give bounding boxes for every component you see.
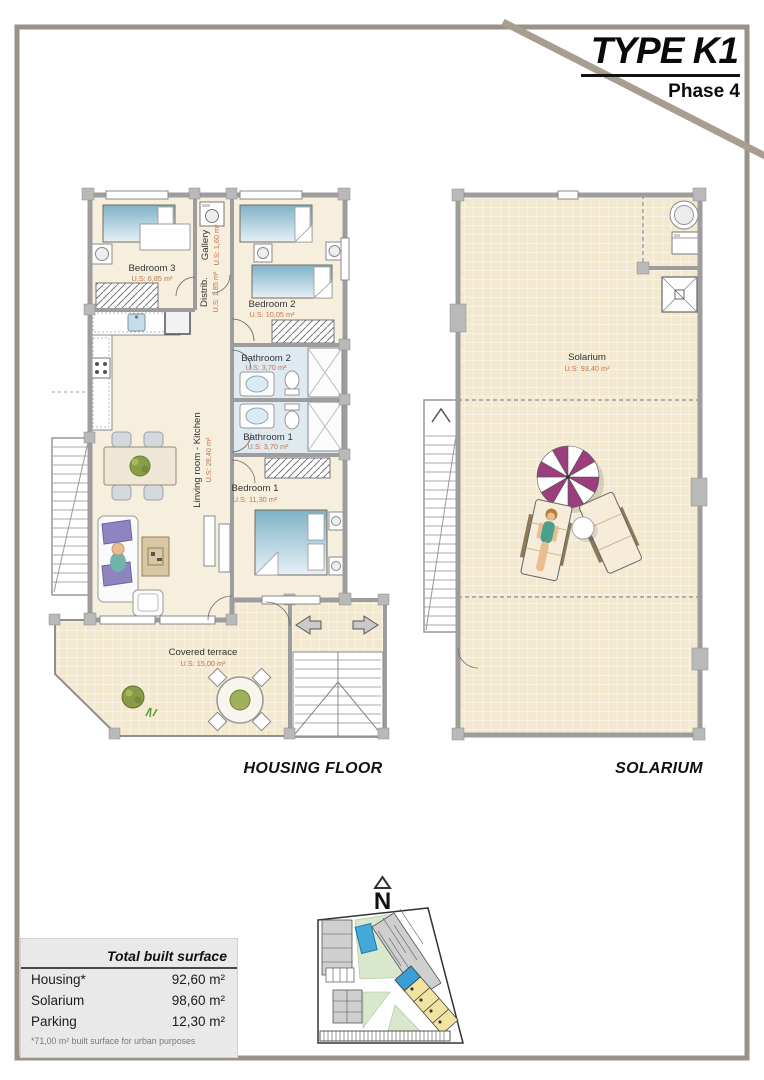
stove-icon — [92, 358, 110, 378]
wardrobe-icon — [96, 283, 158, 310]
sink-icon — [240, 372, 274, 396]
solarium-plan: Solarium U.S: 93,40 m² — [410, 180, 755, 760]
room-label: Bedroom 1 — [232, 483, 279, 494]
floor-plan-sheet: TYPE K1 Phase 4 — [0, 0, 764, 1080]
nightstand-icon — [329, 512, 343, 530]
bed-icon — [252, 265, 332, 298]
row-value: 92,60 m² — [172, 972, 225, 987]
washing-machine-icon — [200, 202, 224, 226]
plan-phase-label: Phase 4 — [581, 81, 740, 103]
window-icon — [558, 191, 578, 199]
toilet-icon — [285, 404, 299, 429]
table-row: Housing* 92,60 m² — [21, 969, 237, 990]
room-area-label: U.S: 1,60 m² — [212, 224, 221, 266]
room-label: Linving room - Kitchen — [192, 412, 203, 507]
sink-icon — [128, 314, 145, 331]
surface-table-title: Total built surface — [21, 939, 237, 969]
room-label: Bedroom 2 — [249, 299, 296, 310]
compass-label: N — [374, 888, 391, 915]
housing-floor-caption: HOUSING FLOOR — [213, 760, 413, 778]
exterior-stairs-icon — [52, 392, 90, 595]
shower-icon — [308, 348, 342, 397]
row-label: Solarium — [31, 993, 84, 1008]
wardrobe-icon — [272, 320, 334, 343]
room-area-label: U.S: 93,40 m² — [564, 364, 610, 373]
row-value: 98,60 m² — [172, 993, 225, 1008]
desk-icon — [140, 224, 190, 250]
room-label: Solarium — [568, 352, 606, 363]
room-label: Bedroom 3 — [129, 263, 176, 274]
wardrobe-icon — [265, 458, 330, 478]
nightstand-icon — [326, 242, 343, 260]
room-area-label: U.S: 1,85 m² — [211, 271, 220, 313]
room-area-label: U.S: 11,30 m² — [233, 495, 278, 504]
compass-north-icon: N — [374, 877, 391, 915]
surface-table: Total built surface Housing* 92,60 m² So… — [20, 938, 238, 1058]
jacuzzi-icon — [670, 201, 698, 229]
nightstand-icon — [92, 244, 112, 264]
room-label: Gallery — [200, 230, 211, 261]
sofa-icon — [98, 516, 138, 602]
nightstand-icon — [254, 244, 272, 262]
plan-header: TYPE K1 Phase 4 — [581, 30, 740, 103]
armchair-icon — [133, 590, 163, 616]
table-row: Solarium 98,60 m² — [21, 990, 237, 1011]
fridge-icon — [165, 311, 190, 334]
solarium-caption: SOLARIUM — [579, 760, 739, 778]
skylight-icon — [662, 277, 697, 312]
bed-icon — [240, 205, 312, 242]
room-label: Covered terrace — [169, 647, 238, 658]
terrace-table-icon — [208, 668, 270, 730]
room-area-label: U.S: 15,00 m² — [180, 659, 226, 668]
toilet-icon — [285, 371, 299, 395]
room-area-label: U.S: 3,70 m² — [248, 442, 290, 451]
stairs-icon — [424, 400, 458, 632]
housing-floor-plan: Bedroom 3 U.S: 6,85 m² Gallery U.S: 1,60… — [40, 180, 400, 760]
rug-icon — [142, 537, 169, 576]
room-area-label: U.S: 3,70 m² — [246, 363, 288, 372]
room-area-label: U.S: 6,85 m² — [132, 274, 174, 283]
shower-icon — [308, 402, 342, 451]
row-value: 12,30 m² — [172, 1014, 225, 1029]
row-label: Housing* — [31, 972, 86, 987]
surface-table-footnote: *71,00 m² built surface for urban purpos… — [21, 1032, 237, 1046]
room-label: Distrib. — [199, 277, 210, 307]
appliance-icon — [672, 232, 698, 254]
room-area-label: U.S: 10,05 m² — [249, 310, 295, 319]
room-area-label: U.S: 28,40 m² — [204, 437, 213, 483]
sink-icon — [240, 404, 274, 428]
table-row: Parking 12,30 m² — [21, 1011, 237, 1032]
site-plan: N — [300, 865, 470, 1065]
double-bed-icon — [255, 510, 327, 575]
nightstand-icon — [329, 557, 343, 575]
row-label: Parking — [31, 1014, 77, 1029]
parking-strip — [320, 1031, 450, 1041]
plan-type-title: TYPE K1 — [581, 30, 740, 77]
